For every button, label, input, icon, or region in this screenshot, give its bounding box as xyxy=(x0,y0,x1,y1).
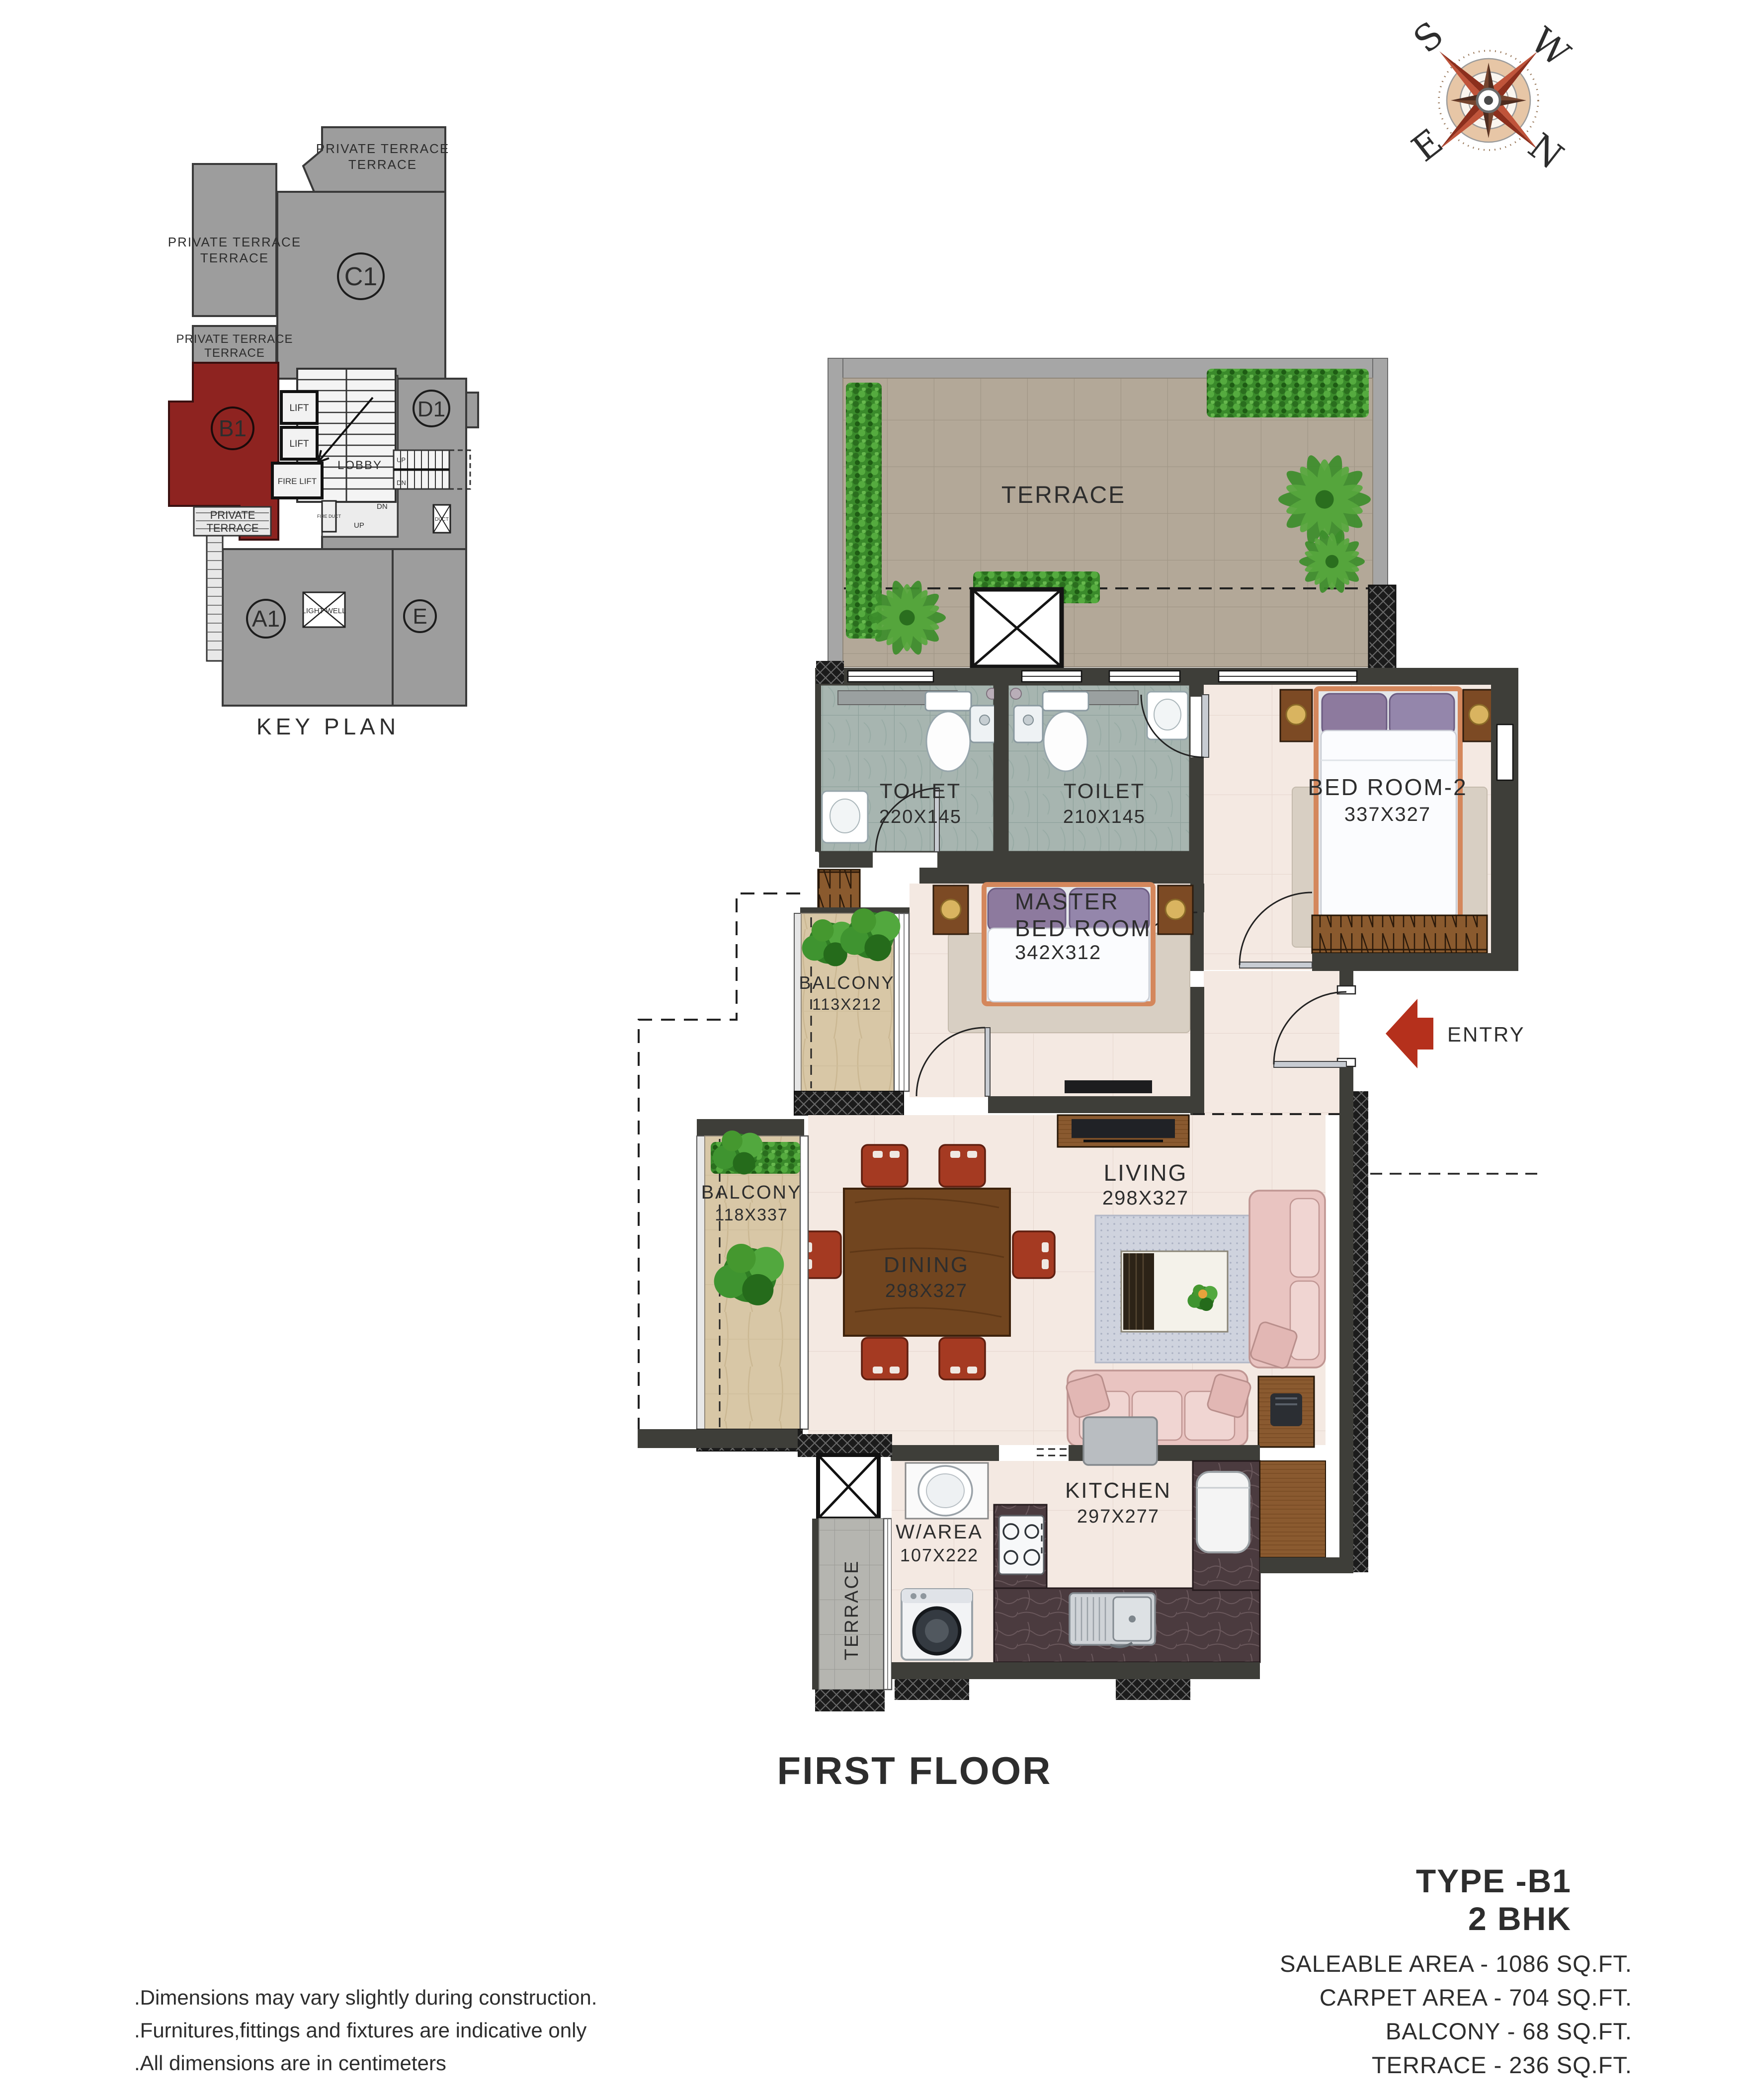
kitchen-stove-icon xyxy=(999,1516,1044,1574)
living-coffee-table-icon xyxy=(1121,1251,1228,1332)
terrace-label: TERRACE xyxy=(1001,482,1126,508)
keyplan-lift2-label: LIFT xyxy=(289,439,309,449)
entry-arrow-icon xyxy=(1386,999,1433,1068)
master-door-leaf xyxy=(985,1028,990,1096)
toilet-2-dims: 210X145 xyxy=(1063,807,1146,827)
master-label-line2: BED ROOM xyxy=(1015,915,1151,941)
toilet-1-dims: 220X145 xyxy=(879,807,962,827)
keyplan-d1-label: D1 xyxy=(417,397,445,421)
balcony-2: BALCONY 118X337 xyxy=(697,1119,808,1451)
dining-label: DINING xyxy=(884,1253,969,1277)
foyer-wood-floor xyxy=(1260,1461,1326,1557)
living-sofa-right-icon xyxy=(1249,1191,1325,1370)
area-line-balcony: BALCONY - 68 SQ.FT. xyxy=(1386,2018,1632,2044)
keyplan-light-well-label: LIGHT WELL xyxy=(302,607,346,615)
terrace-strip-mat xyxy=(815,1690,885,1711)
bedroom-2-wall-left-lower xyxy=(1190,757,1204,971)
balcony-2-window-right xyxy=(800,1136,808,1429)
kitchen-dims: 297X277 xyxy=(1077,1506,1160,1527)
entry-label: ENTRY xyxy=(1447,1023,1525,1046)
kitchen-fridge-icon xyxy=(1083,1417,1157,1465)
w-area-label: W/AREA xyxy=(896,1521,983,1543)
keyplan-fire-lift-label: FIRE LIFT xyxy=(278,477,317,486)
master-wall-bottom xyxy=(988,1096,1190,1113)
toilet-1-wall-left xyxy=(815,685,821,852)
type-line-1: TYPE -B1 xyxy=(1416,1862,1572,1899)
toilet-2-shower-icon xyxy=(1014,706,1043,742)
w-area-dims: 107X222 xyxy=(900,1545,979,1565)
balcony-1: BALCONY 113X212 xyxy=(794,907,910,1115)
area-line-terrace: TERRACE - 236 SQ.FT. xyxy=(1372,2052,1632,2078)
balcony-1-mat xyxy=(794,1091,904,1115)
terrace-hedge-left xyxy=(846,383,882,639)
master-wall-right-b xyxy=(1190,987,1204,1115)
master-dims: 342X312 xyxy=(1015,942,1101,964)
master-wardrobe-icon xyxy=(818,870,860,909)
bedroom-2-label: BED ROOM-2 xyxy=(1308,774,1467,800)
left-lower-wall-bar xyxy=(638,1429,798,1448)
living-tv-console-icon xyxy=(1058,1115,1189,1147)
bedroom-2-wardrobe-icon xyxy=(1312,915,1487,953)
balcony-2-label: BALCONY xyxy=(701,1182,802,1203)
keyplan-dn2-label: DN xyxy=(397,479,406,486)
area-line-carpet: CARPET AREA - 704 SQ.FT. xyxy=(1320,1984,1632,2011)
living-dims: 298X327 xyxy=(1102,1187,1189,1209)
kitchen-sink-icon xyxy=(1070,1593,1155,1647)
wash-basin-inner-icon xyxy=(926,1474,964,1508)
toilet-2-wall-bottom xyxy=(1008,852,1190,868)
bedroom-2-door-leaf xyxy=(1240,962,1312,968)
living-dining: DINING 298X327 L xyxy=(799,1114,1339,1467)
top-wall-corner-hatch xyxy=(816,661,844,684)
master-nightstand-left-icon xyxy=(933,886,968,934)
floor-plan-page: PRIVATE TERRACE TERRACE PRIVATE TERRACE … xyxy=(0,0,1743,2100)
compass-icon: S W E N xyxy=(1390,2,1587,199)
master-wall-top xyxy=(919,868,1190,884)
keyplan-c1-label: C1 xyxy=(344,262,377,291)
entry-wall-lower xyxy=(1339,1065,1353,1572)
bedroom-2-wall-bottom xyxy=(1312,953,1518,971)
kitchen-bottom-wall xyxy=(892,1662,1260,1679)
terrace-strip: TERRACE xyxy=(812,1519,892,1711)
toilet-1-wall-bottom-a xyxy=(819,852,873,868)
keyplan-up2-label: UP xyxy=(397,456,406,464)
bedroom-2-nightstand-left-icon xyxy=(1280,690,1312,741)
keyplan-dn-label: DN xyxy=(377,502,388,511)
terrace-strip-label: TERRACE xyxy=(841,1560,862,1661)
keyplan-up-label: UP xyxy=(354,521,364,530)
bedroom-2-nightstand-right-icon xyxy=(1463,690,1495,741)
entry-door-leaf xyxy=(1274,1061,1346,1067)
foyer-bottom-wall xyxy=(1260,1557,1353,1573)
toilet-1-label: TOILET xyxy=(880,779,961,803)
master-nightstand-right-icon xyxy=(1158,886,1193,934)
keyplan-d1-notch xyxy=(466,393,478,427)
kitchen-mat-2 xyxy=(1116,1679,1190,1700)
bedroom-2: BED ROOM-2 337X327 xyxy=(1141,668,1518,971)
balcony-1-window-right xyxy=(894,913,909,1091)
note-line-3: .All dimensions are in centimeters xyxy=(134,2051,446,2075)
terrace: TERRACE xyxy=(828,358,1396,693)
master-label-line1: MASTER xyxy=(1015,888,1119,914)
note-line-2: .Furnitures,fittings and fixtures are in… xyxy=(134,2019,586,2042)
floor-plan-canvas: PRIVATE TERRACE TERRACE PRIVATE TERRACE … xyxy=(0,0,1743,2100)
keyplan-hatched-terrace-label: PRIVATE xyxy=(210,509,255,521)
note-line-1: .Dimensions may vary slightly during con… xyxy=(134,1986,597,2009)
dining-dims: 298X327 xyxy=(885,1281,968,1301)
balcony-1-window-left xyxy=(794,913,801,1091)
service-shaft-icon xyxy=(818,1455,879,1519)
main-floor-plan: TERRACE TOILET 220X145 xyxy=(638,358,1540,1711)
footer: FIRST FLOOR TYPE -B1 2 BHK SALEABLE AREA… xyxy=(134,1749,1632,2078)
keyplan-e-block xyxy=(393,549,466,706)
type-line-2: 2 BHK xyxy=(1468,1900,1572,1937)
compass-n-label: N xyxy=(1521,125,1571,177)
keyplan-left-terrace2-label2: TERRACE xyxy=(204,346,265,360)
living-side-table-icon xyxy=(1258,1376,1314,1447)
compass-w-label: W xyxy=(1523,19,1578,75)
keyplan-a1-label: A1 xyxy=(252,606,280,632)
bedroom-2-wall-right xyxy=(1491,668,1518,971)
hallway-floor xyxy=(1204,971,1339,1115)
terrace-hedge-topright xyxy=(1207,369,1369,417)
keyplan-lift1-label: LIFT xyxy=(289,403,309,413)
balcony-1-label: BALCONY xyxy=(799,972,895,993)
kitchen-label: KITCHEN xyxy=(1065,1478,1171,1503)
keyplan-left-terrace1-label: PRIVATE TERRACE xyxy=(168,235,301,249)
terrace-light-well-icon xyxy=(972,589,1062,667)
compass-e-label: E xyxy=(1404,121,1450,170)
terrace-wall-left xyxy=(828,358,843,667)
toilet-2: TOILET 210X145 xyxy=(1008,685,1190,868)
right-hatch-band xyxy=(1353,1091,1368,1572)
balcony-1-dims: 113X212 xyxy=(812,995,882,1013)
terrace-strip-wall-left xyxy=(812,1519,819,1690)
keyplan-terrace-c1-label: PRIVATE TERRACE xyxy=(316,141,449,156)
toilet-2-wc-icon xyxy=(1043,692,1088,771)
toilet-2-door-leaf xyxy=(1202,695,1209,757)
master-tv-icon xyxy=(1065,1080,1152,1093)
area-line-saleable: SALEABLE AREA - 1086 SQ.FT. xyxy=(1280,1950,1632,1977)
balcony-2-window-left xyxy=(697,1136,705,1429)
toilet-1-sink-icon xyxy=(822,791,868,843)
kitchen-mat-1 xyxy=(895,1679,969,1700)
toilet-divider-wall xyxy=(994,685,1008,868)
toilet-2-drain-icon xyxy=(1010,688,1021,699)
floor-title: FIRST FLOOR xyxy=(777,1749,1052,1792)
bedroom-2-dims: 337X327 xyxy=(1344,804,1431,825)
toilet-1-wc-icon xyxy=(925,692,971,771)
keyplan-fire-duct-label: FIRE DUCT xyxy=(317,514,341,519)
washing-machine-icon xyxy=(902,1589,972,1660)
living-label: LIVING xyxy=(1104,1160,1188,1186)
key-plan: PRIVATE TERRACE TERRACE PRIVATE TERRACE … xyxy=(168,127,478,739)
keyplan-left-terrace1-label2: TERRACE xyxy=(200,250,269,265)
compass-s-label: S xyxy=(1406,13,1451,61)
balcony-2-dims: 118X337 xyxy=(715,1206,788,1224)
keyplan-e-label: E xyxy=(413,604,427,629)
water-heater-icon xyxy=(1197,1472,1249,1552)
terrace-wall-right xyxy=(1373,358,1388,587)
toilet-1: TOILET 220X145 xyxy=(815,685,999,868)
toilet-1-wall-bottom-b xyxy=(937,852,994,868)
w-area: W/AREA 107X222 xyxy=(892,1461,994,1662)
keyplan-hatched-terrace-label2: TERRACE xyxy=(206,522,258,534)
keyplan-left-terrace2-label: PRIVATE TERRACE xyxy=(176,332,293,346)
keyplan-lobby-label: LOBBY xyxy=(337,459,382,472)
keyplan-b1-label: B1 xyxy=(219,415,247,441)
keyplan-title: KEY PLAN xyxy=(256,714,400,739)
toilet-2-label: TOILET xyxy=(1064,779,1145,803)
keyplan-duct-label: DUCT xyxy=(435,517,449,522)
bedroom-2-window-right xyxy=(1497,725,1513,780)
keyplan-terrace-c1-label2: TERRACE xyxy=(348,157,417,172)
nook-top-wall xyxy=(891,1445,999,1461)
